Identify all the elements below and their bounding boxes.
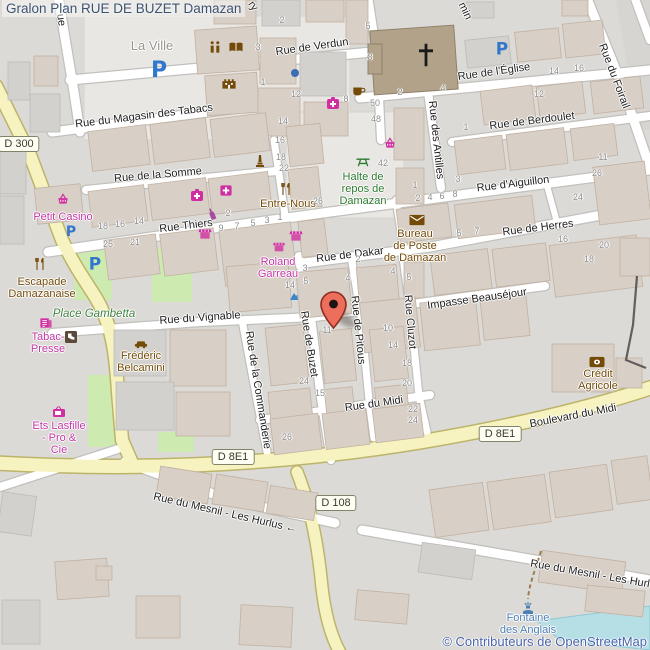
street-label-rue-du-mesnil-les-hurl: Rue du Mesnil - Les Hurl — [529, 558, 650, 591]
forkknife-icon — [279, 182, 293, 196]
street-label-rue-de-dakar: Rue de Dakar — [316, 245, 385, 265]
house-number: 26 — [592, 168, 602, 178]
house-number: 24 — [573, 192, 583, 202]
street-label-rue-cluzot: Rue Cluzot — [402, 294, 419, 349]
house-number: 2 — [355, 254, 360, 264]
house-number: 20 — [599, 240, 609, 250]
house-number: 9 — [218, 223, 223, 233]
poi-label-la-ville: La Ville — [131, 39, 173, 53]
house-number: 18 — [276, 152, 286, 162]
street-label-min: min — [456, 0, 474, 21]
picnic-icon — [356, 157, 371, 168]
cup-icon — [352, 85, 366, 96]
envelope-icon — [410, 215, 425, 226]
monument-icon — [253, 154, 267, 168]
poi-label-credit: CréditAgricole — [578, 369, 618, 393]
house-number: 2 — [279, 15, 284, 25]
waterjet-icon — [288, 290, 300, 302]
house-number: 12 — [534, 89, 544, 99]
house-number: 4 — [427, 192, 432, 202]
street-label-rue-d-aiguillon: Rue d'Aiguillon — [476, 174, 550, 195]
house-number: 24 — [408, 415, 418, 425]
forkknife-icon — [33, 257, 47, 271]
street-label-rue-de-la-commanderie: Rue de la Commanderie — [243, 330, 274, 450]
firstaid-icon — [220, 184, 233, 197]
poi-label-ets-lasfille: Ets Lasfille- Pro &Cie — [32, 421, 85, 457]
house-number: 25 — [103, 239, 113, 249]
house-number: 3 — [255, 42, 260, 52]
poi-label-place-gambetta: Place Gambetta — [53, 308, 135, 320]
house-number: 10 — [383, 323, 393, 333]
poi-label-petit-casino: Petit Casino — [33, 212, 92, 224]
house-number: 4 — [440, 83, 445, 93]
road-ref-badge-d-8e1: D 8E1 — [479, 426, 522, 442]
street-label-rue-de-pitous: Rue de Pitous — [348, 295, 367, 365]
street-label-rue-du-mesnil-les-hurlus: Rue du Mesnil - Les Hurlus ← — [152, 491, 298, 536]
house-number: 14 — [134, 216, 144, 226]
house-number: 1 — [260, 77, 265, 87]
road-ref-badge-d-8e1: D 8E1 — [212, 449, 255, 465]
basket-icon — [384, 137, 397, 150]
house-number: 16 — [115, 219, 125, 229]
book-icon — [229, 41, 244, 52]
house-number: 15 — [315, 388, 325, 398]
poi-label-tabac: Tabac-Presse — [31, 332, 65, 356]
house-number: 22 — [279, 163, 289, 173]
house-number: 8 — [343, 94, 348, 104]
house-number: 5 — [303, 276, 308, 286]
street-label-ry: ry — [245, 0, 260, 13]
house-number: 14 — [278, 116, 288, 126]
house-number: 21 — [130, 237, 140, 247]
street-label-rue-du-magasin-des-tabacs: Rue du Magasin des Tabacs — [74, 102, 213, 131]
house-number: 18 — [98, 221, 108, 231]
house-number: 24 — [299, 376, 309, 386]
tv-icon — [52, 406, 66, 419]
poi-label-halte-de: Halte derepos deDamazan — [339, 172, 386, 208]
house-number: 3 — [455, 174, 460, 184]
street-label-impasse-beausejour: Impasse Beauséjour — [427, 286, 528, 312]
house-number: 3 — [367, 52, 372, 62]
street-label-rue-des-antilles: Rue des Antilles — [426, 100, 446, 180]
house-number: 14 — [388, 340, 398, 350]
house-number: 12 — [291, 89, 301, 99]
house-number: 22 — [408, 404, 418, 414]
page-title: Gralon Plan RUE DE BUZET Damazan — [2, 0, 245, 17]
street-label-rue-du-vignable: Rue du Vignable — [159, 309, 241, 327]
house-number: 7 — [474, 226, 479, 236]
house-number: 16 — [574, 63, 584, 73]
parking-icon: P — [151, 60, 167, 82]
poi-label-frederic: FrédéricBelcamini — [117, 351, 165, 375]
bank-icon — [590, 357, 605, 368]
house-number: 4 — [390, 266, 395, 276]
awning-icon — [199, 228, 212, 241]
house-number: 16 — [558, 234, 568, 244]
street-label-rue-du-foirail: Rue du Foirail — [596, 42, 632, 110]
location-marker-icon[interactable] — [320, 291, 347, 334]
cross-icon — [418, 43, 435, 67]
house-number: 18 — [584, 254, 594, 264]
house-number: 42 — [378, 158, 388, 168]
street-label-rue-de-buzet: Rue de Buzet — [298, 310, 320, 378]
house-number: 48 — [371, 114, 381, 124]
poi-label-escapade: EscapadeDamazanaise — [8, 277, 75, 301]
house-number: 5 — [250, 218, 255, 228]
house-number: 26 — [313, 196, 323, 206]
parking-icon: P — [89, 257, 101, 274]
house-number: 1 — [277, 212, 282, 222]
dot-icon — [291, 69, 299, 77]
car-icon — [134, 339, 148, 348]
street-label-rue-de-verdun: Rue de Verdun — [275, 36, 349, 58]
basket-icon — [57, 193, 70, 206]
house-number: 3 — [264, 215, 269, 225]
poi-label-bureau: Bureaude Postede Damazan — [384, 229, 446, 265]
newspaper-icon — [40, 317, 53, 329]
darkshop-icon — [65, 331, 77, 343]
house-number: 4 — [345, 273, 350, 283]
house-number: 5 — [365, 21, 370, 31]
house-number: 2 — [415, 193, 420, 203]
poi-label-roland: RolandGarreau — [258, 257, 298, 281]
street-label-rue-du-midi: Rue du Midi — [344, 394, 404, 414]
house-number: 3 — [302, 263, 307, 273]
street-label-rue-de-berdoulet: Rue de Berdoulet — [489, 110, 575, 132]
house-number: 11 — [598, 152, 607, 162]
house-number: 2 — [225, 208, 230, 218]
house-number: 14 — [549, 66, 559, 76]
parking-icon: P — [496, 42, 508, 59]
house-number: 14 — [285, 280, 295, 290]
house-number: 2 — [397, 87, 402, 97]
house-number: 6 — [439, 191, 444, 201]
house-number: 8 — [452, 189, 457, 199]
house-number: 7 — [234, 221, 239, 231]
road-ref-badge-d-300: D 300 — [0, 136, 40, 152]
house-number: 1 — [412, 180, 417, 190]
awning-icon — [273, 241, 285, 253]
house-number: 5 — [456, 228, 461, 238]
street-label-rue-de-la-somme: Rue de la Somme — [114, 165, 203, 185]
osm-attribution-link[interactable]: © Contributeurs de OpenStreetMap — [442, 634, 647, 649]
house-number: 1 — [463, 122, 468, 132]
street-label-boulevard-du-midi: Boulevard du Midi — [529, 402, 618, 431]
awning-icon — [290, 230, 303, 243]
statue-icon — [208, 40, 223, 54]
house-number: 16 — [275, 135, 285, 145]
street-label-rue-de-l-eglise: Rue de l'Église — [457, 61, 531, 83]
house-number: 50 — [370, 98, 380, 108]
house-number: 5 — [406, 272, 411, 282]
pharmacy-icon — [190, 188, 204, 202]
pharmacy-icon — [326, 96, 340, 110]
parking-icon: P — [66, 225, 76, 239]
house-number: 18 — [402, 358, 412, 368]
house-number: 26 — [282, 432, 292, 442]
castle-icon — [222, 77, 237, 89]
map-canvas[interactable]: Rue de VerdunRue de l'ÉgliseRue du Foira… — [0, 0, 650, 650]
fountain-icon — [521, 601, 535, 615]
poi-label-entre-nous: Entre-Nous — [260, 199, 316, 211]
road-ref-badge-d-108: D 108 — [315, 495, 356, 511]
house-number: 20 — [402, 378, 412, 388]
